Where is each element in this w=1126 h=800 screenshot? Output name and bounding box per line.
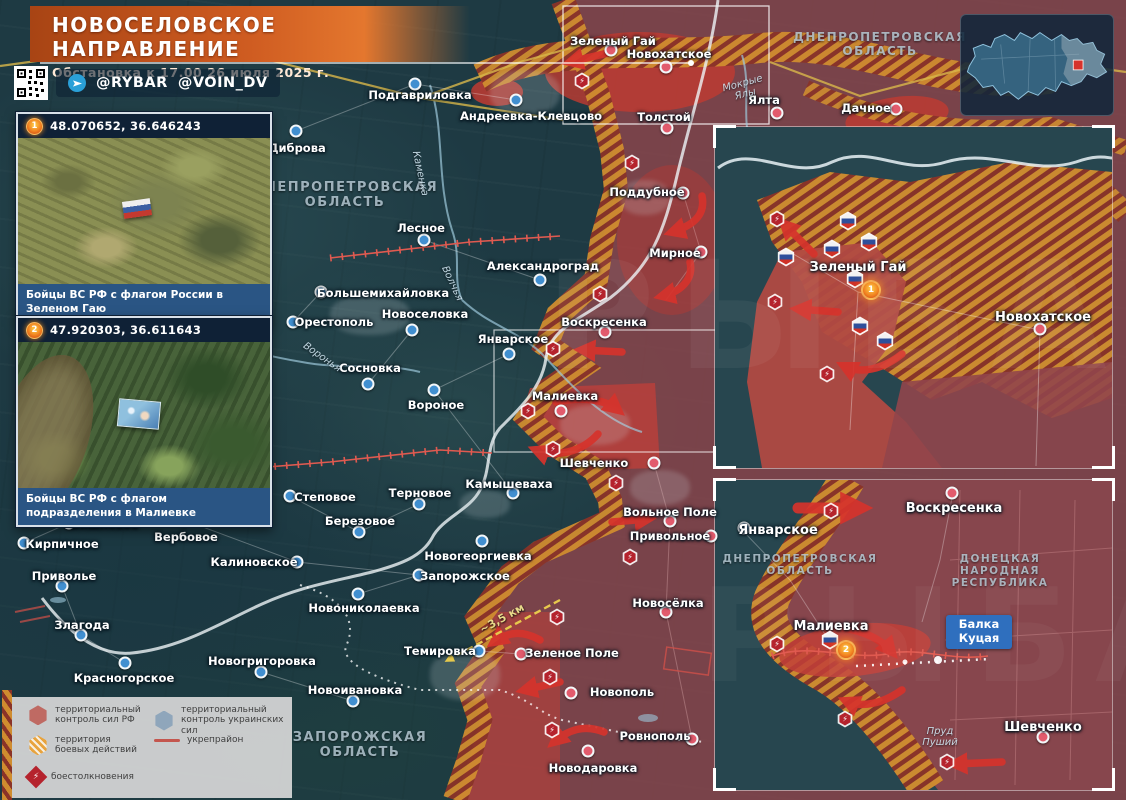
- telegram-handle-rybar[interactable]: @RYBAR: [96, 75, 168, 91]
- photo-card-1[interactable]: 1 48.070652, 36.646243 Бойцы ВС РФ с фла…: [16, 112, 272, 323]
- telegram-chip: @RYBAR @VOIN_DV: [56, 69, 280, 97]
- telegram-row: @RYBAR @VOIN_DV: [14, 66, 280, 100]
- qr-code: [14, 66, 48, 100]
- photo-card-2[interactable]: 2 47.920303, 36.611643 Бойцы ВС РФ с фла…: [16, 316, 272, 527]
- minimap-focus-marker: [1073, 60, 1083, 70]
- legend-fortified-line-label: укрепрайон: [187, 735, 243, 745]
- photo-card-2-caption: Бойцы ВС РФ с флагом подразделения в Мал…: [18, 488, 270, 525]
- photo-card-1-header: 1 48.070652, 36.646243: [18, 114, 270, 138]
- unit-flag-in-photo: [117, 398, 161, 430]
- map-edge-strip: [2, 690, 12, 800]
- forest-path: [18, 342, 112, 488]
- page-title: НОВОСЕЛОВСКОЕ НАПРАВЛЕНИЕ: [52, 13, 470, 61]
- legend-fortified-line-icon: [154, 739, 180, 742]
- legend-rf-control-label: территориальный контроль сил РФ: [55, 705, 146, 726]
- legend-ua-control-icon: [154, 711, 174, 731]
- ukraine-outline: [961, 15, 1111, 113]
- legend-combat-zone-label: территория боевых действий: [55, 735, 146, 756]
- legend-clash-icon: ⚡: [25, 766, 48, 789]
- photo-unit-flag-forest: [18, 342, 270, 488]
- distance-arrow: [448, 600, 560, 660]
- legend-ua-control-label: территориальный контроль украинских сил: [181, 705, 284, 736]
- photo-card-1-coordinates: 48.070652, 36.646243: [50, 119, 201, 133]
- inset2-zones: [744, 478, 1112, 790]
- legend-rf-control-icon: [28, 705, 48, 725]
- photo-russian-flag-field: [18, 138, 270, 284]
- telegram-icon: [68, 74, 86, 92]
- telegram-handle-voindv[interactable]: @VOIN_DV: [178, 75, 268, 91]
- legend-clash-label: боестолкновения: [51, 772, 134, 782]
- photo-card-2-header: 2 47.920303, 36.611643: [18, 318, 270, 342]
- marker-1-icon: 1: [26, 118, 43, 135]
- header-underline: [40, 62, 690, 64]
- russia-flag-in-photo: [122, 198, 152, 219]
- legend-combat-zone-icon: [28, 735, 48, 755]
- header-panel: НОВОСЕЛОВСКОЕ НАПРАВЛЕНИЕ Обстановка к 1…: [30, 6, 470, 62]
- marker-2-icon: 2: [26, 322, 43, 339]
- ukraine-minimap: [960, 14, 1114, 116]
- map-canvas: РЫБАРЬ РЫБАРЬ Балка Куцая ~3,5 км Подгав…: [0, 0, 1126, 800]
- inset1-zones: [718, 156, 1112, 468]
- legend-panel: территориальный контроль сил РФ территор…: [12, 697, 292, 798]
- photo-card-2-coordinates: 47.920303, 36.611643: [50, 323, 201, 337]
